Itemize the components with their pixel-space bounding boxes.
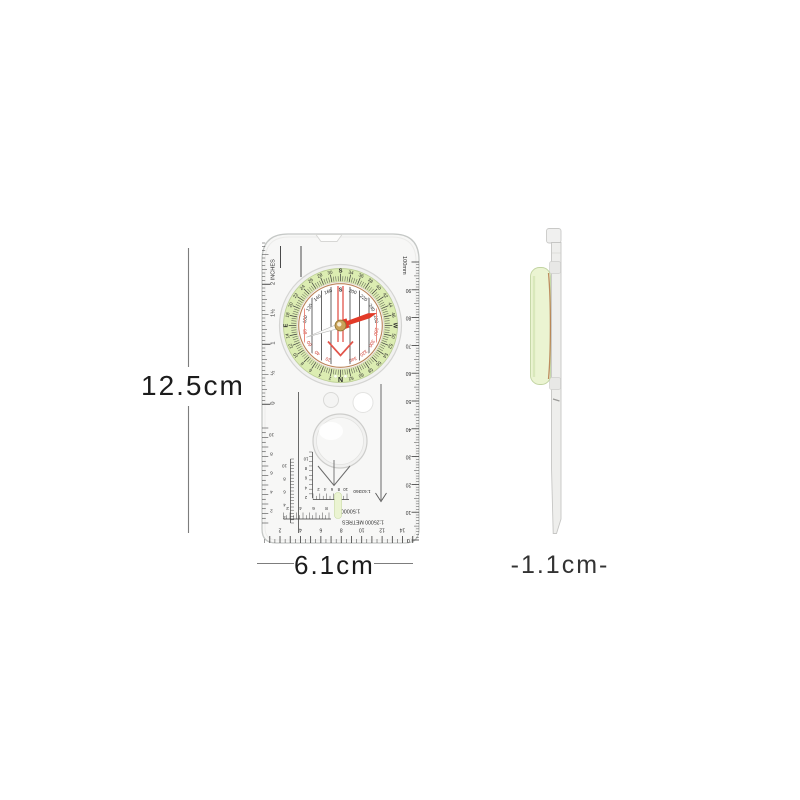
ruler-number: 10 xyxy=(359,527,365,533)
side-capsule-clamp-bottom xyxy=(550,378,561,390)
scale1-label: 1:63360 xyxy=(353,488,371,494)
ruler-label: ½ xyxy=(270,370,277,375)
product-dimension-diagram: 2 INCHES 1½ 1 ½ 0 9080706050403020100 10… xyxy=(0,0,800,800)
height-dimension-label: 12.5cm xyxy=(141,370,237,402)
compass-side-view xyxy=(531,229,562,534)
ruler-number: 14 xyxy=(400,527,406,533)
compass-illustration: 2 INCHES 1½ 1 ½ 0 9080706050403020100 10… xyxy=(0,0,800,800)
ruler-number: 70 xyxy=(406,342,412,348)
ruler-number: 40 xyxy=(406,426,412,432)
scale3-label: 1:25000 METRES xyxy=(342,519,384,525)
bezel-label: N xyxy=(338,375,343,384)
ruler-number: 10 xyxy=(282,464,287,469)
ruler-number: 0 xyxy=(407,537,410,543)
ruler-number: 6 xyxy=(270,471,273,476)
ruler-number: 8 xyxy=(325,505,328,511)
ruler-number: 8 xyxy=(340,527,343,533)
pivot-hub-highlight xyxy=(337,322,341,326)
luminous-dot xyxy=(344,375,347,378)
ruler-number: 2 xyxy=(270,509,273,514)
luminous-dot xyxy=(334,375,337,378)
ruler-label: 0 xyxy=(271,401,277,404)
ruler-label: 2 INCHES xyxy=(271,259,277,285)
baseplate-hole-small xyxy=(324,393,339,408)
ruler-number: 80 xyxy=(406,315,412,321)
lanyard-notch xyxy=(316,235,342,242)
bezel-label: W xyxy=(392,323,398,329)
ruler-number: 50 xyxy=(406,398,412,404)
compass-front-view: 2 INCHES 1½ 1 ½ 0 9080706050403020100 10… xyxy=(262,234,419,543)
ruler-number: 10 xyxy=(343,487,348,492)
ruler-number: 8 xyxy=(270,452,273,457)
ruler-number: 6 xyxy=(312,505,315,511)
ruler-number: 30 xyxy=(406,454,412,460)
magnifier-lens xyxy=(313,414,367,468)
ruler-number: 4 xyxy=(299,505,302,511)
side-capsule-clamp-top xyxy=(550,262,561,274)
ruler-number: 2 xyxy=(286,505,289,511)
ruler-label: 1½ xyxy=(270,309,277,317)
ruler-number: 90 xyxy=(406,287,412,293)
bezel-label: S xyxy=(339,269,343,275)
ruler-number: 4 xyxy=(270,490,273,495)
thickness-dimension-label: -1.1cm- xyxy=(508,551,612,580)
ruler-number: 4 xyxy=(299,527,302,533)
compass-dial: S34363840424446W50525456586062N246810121… xyxy=(280,265,402,387)
ruler-number: 10 xyxy=(303,457,308,462)
luminous-strip xyxy=(335,493,342,519)
ruler-label: 1 xyxy=(271,341,277,344)
mm-unit-label: 100mm xyxy=(401,256,407,275)
side-top-tab xyxy=(547,229,562,244)
ruler-number: 12 xyxy=(379,527,385,533)
ruler-number: 60 xyxy=(406,370,412,376)
dial-degree-label: S xyxy=(339,288,343,294)
ruler-number: 2 xyxy=(278,527,281,533)
ruler-number: 6 xyxy=(319,527,322,533)
ruler-number: 10 xyxy=(406,509,412,515)
ruler-number: 10 xyxy=(269,433,275,438)
width-dimension-label: 6.1cm xyxy=(294,550,374,581)
bezel-label: E xyxy=(284,323,290,327)
scale2-label: 1:50000 xyxy=(341,508,361,514)
ruler-number: 20 xyxy=(406,481,412,487)
baseplate-hole-large xyxy=(353,393,373,413)
